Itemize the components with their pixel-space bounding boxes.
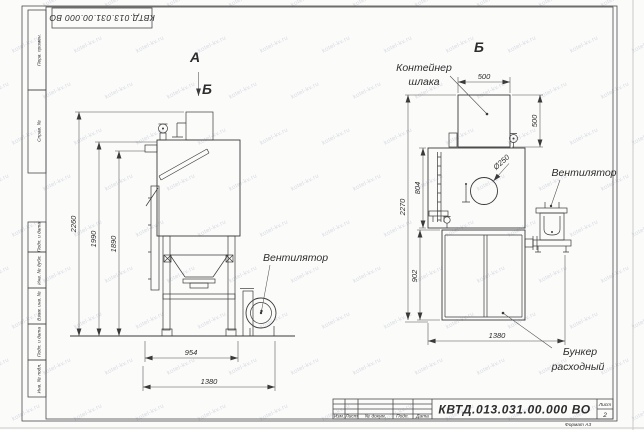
tb-sheet-number: 2 bbox=[602, 412, 607, 419]
engineering-drawing: Перв. примен. Справ. № Подп. и дата Инв.… bbox=[0, 0, 644, 430]
side-view-dimensions: 500 500 2270 804 902 1380 Ø250 bbox=[398, 72, 565, 345]
title-block: Изм. Лист № докум. Подп. Дата КВТД.013.0… bbox=[333, 399, 613, 428]
tb-doc-number: КВТД.013.031.00.000 ВО bbox=[438, 403, 590, 417]
field-sprav-n: Справ. № bbox=[37, 120, 43, 142]
tb-format-note: Формат А3 bbox=[565, 422, 592, 428]
dim-500h: 500 bbox=[530, 114, 539, 127]
sheet-frame bbox=[0, 0, 644, 430]
top-left-doc-number: КВТД.013.031.00.000 ВО bbox=[49, 13, 155, 23]
tb-sheet-label: Лист bbox=[598, 402, 611, 408]
fan-label-side: Вентилятор bbox=[551, 167, 616, 179]
drawing-sheet: kotel-kv.rukotel-kv.rukotel-kv.rukotel-k… bbox=[0, 0, 644, 430]
dim-1380-side: 1380 bbox=[489, 331, 507, 340]
dim-1990: 1990 bbox=[89, 230, 98, 248]
front-view-fan bbox=[240, 289, 288, 337]
container-label-line2: шлака bbox=[408, 76, 439, 88]
dim-d250: Ø250 bbox=[491, 152, 512, 172]
view-label-a: А bbox=[189, 49, 200, 65]
container-label-line1: Контейнер bbox=[396, 62, 452, 74]
hopper-label-line1: Бункер bbox=[563, 346, 597, 358]
field-inv-dubl: Инв. № дубл. bbox=[37, 255, 43, 285]
field-vzam-inv: Взам. инв. № bbox=[37, 291, 43, 321]
dim-1890: 1890 bbox=[109, 235, 118, 253]
field-podp-data-2: Подп. и дата bbox=[37, 327, 43, 357]
dim-500w: 500 bbox=[478, 72, 491, 81]
tb-col-izm: Изм. bbox=[334, 414, 344, 420]
dim-2270: 2270 bbox=[398, 198, 407, 217]
view-label-side: Б bbox=[474, 39, 484, 55]
side-view-callouts: Контейнер шлака Вентилятор Бункер расход… bbox=[396, 62, 617, 373]
dim-2260: 2260 bbox=[69, 215, 78, 234]
dim-954: 954 bbox=[185, 348, 198, 357]
hopper-label-line2: расходный bbox=[551, 361, 605, 373]
tb-col-data: Дата bbox=[415, 414, 429, 420]
tb-col-doc: № докум. bbox=[365, 414, 386, 420]
view-labels-front: А Б bbox=[189, 49, 212, 97]
top-left-doc-stamp: КВТД.013.031.00.000 ВО bbox=[49, 8, 155, 28]
fan-label-front: Вентилятор bbox=[263, 252, 328, 264]
view-label-b-arrow: Б bbox=[202, 81, 212, 97]
field-podp-data-1: Подп. и дата bbox=[37, 222, 43, 252]
dim-902: 902 bbox=[410, 269, 419, 282]
field-inv-podl: Инв. № подл. bbox=[37, 364, 43, 394]
frame-left-fields: Перв. примен. Справ. № Подп. и дата Инв.… bbox=[28, 10, 46, 397]
dim-1380-front: 1380 bbox=[201, 377, 219, 386]
side-view-fan bbox=[525, 202, 571, 252]
field-perv-primen: Перв. примен. bbox=[37, 34, 43, 66]
tb-col-list: Лист bbox=[344, 414, 357, 420]
tb-col-podp: Подп. bbox=[396, 414, 409, 420]
dim-804: 804 bbox=[413, 182, 422, 195]
side-view-body bbox=[428, 95, 525, 320]
